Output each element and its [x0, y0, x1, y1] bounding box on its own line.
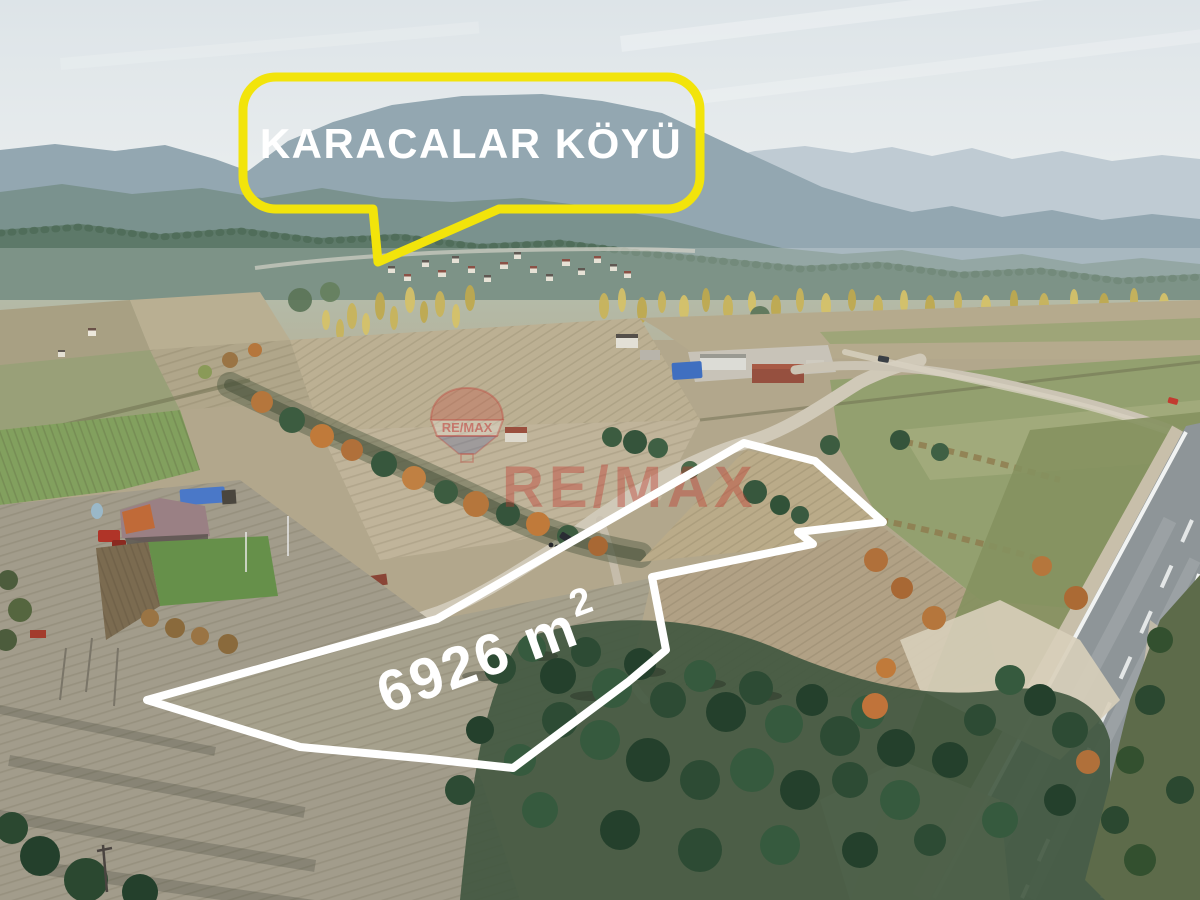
aerial-photo: RE/MAX RE/MAX 6926 m2 KARACALAR KÖYÜ: [0, 0, 1200, 900]
aerial-photo-stage: RE/MAX RE/MAX 6926 m2 KARACALAR KÖYÜ: [0, 0, 1200, 900]
lawn: [148, 536, 278, 606]
remax-balloon-text: RE/MAX: [442, 420, 493, 435]
callout-village-name: KARACALAR KÖYÜ: [260, 120, 682, 167]
